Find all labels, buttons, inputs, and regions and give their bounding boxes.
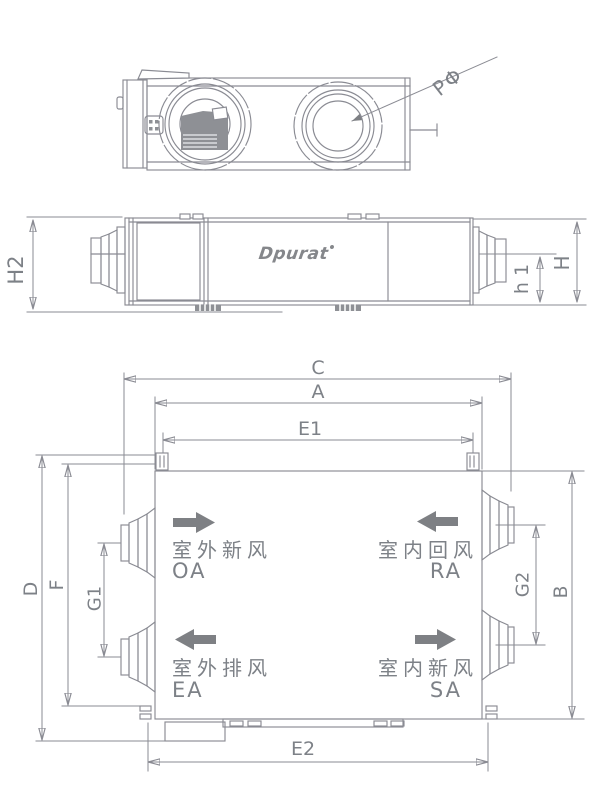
dim-label-e2: E2 xyxy=(253,738,353,760)
fan-motor xyxy=(181,107,228,150)
dim-label-a: A xyxy=(268,381,368,403)
ea-flow-arrow xyxy=(175,629,216,650)
port-label-oa-code: OA xyxy=(172,559,207,583)
dim-label-e1: E1 xyxy=(260,418,360,440)
technical-drawing-page: PΦ H2 h 1 H Dpurat C A E1 E2 D F G1 G2 B… xyxy=(0,0,600,800)
brand-logo: Dpurat xyxy=(245,244,348,264)
oa-flow-arrow xyxy=(173,512,215,533)
dim-label-c: C xyxy=(268,357,368,379)
dim-label-h2: H2 xyxy=(4,248,28,292)
dim-label-d: D xyxy=(20,567,42,611)
dim-label-f: F xyxy=(46,563,68,607)
port-label-sa-cn: 室内新风 xyxy=(348,652,478,681)
registered-dot-icon xyxy=(330,245,335,249)
dim-label-h1: h 1 xyxy=(511,257,533,301)
port-label-sa-code: SA xyxy=(348,678,462,702)
port-label-ra-code: RA xyxy=(348,559,462,583)
brand-logo-text: Dpurat xyxy=(257,244,329,264)
ra-flow-arrow xyxy=(417,511,458,532)
dim-label-g2: G2 xyxy=(513,563,534,607)
dim-label-g1: G1 xyxy=(85,577,106,621)
dim-label-b: B xyxy=(550,570,572,614)
dim-label-h: H xyxy=(550,241,574,285)
sa-flow-arrow xyxy=(415,629,456,650)
port-label-ea-code: EA xyxy=(172,678,204,702)
port-label-ea-cn: 室外排风 xyxy=(172,652,272,681)
